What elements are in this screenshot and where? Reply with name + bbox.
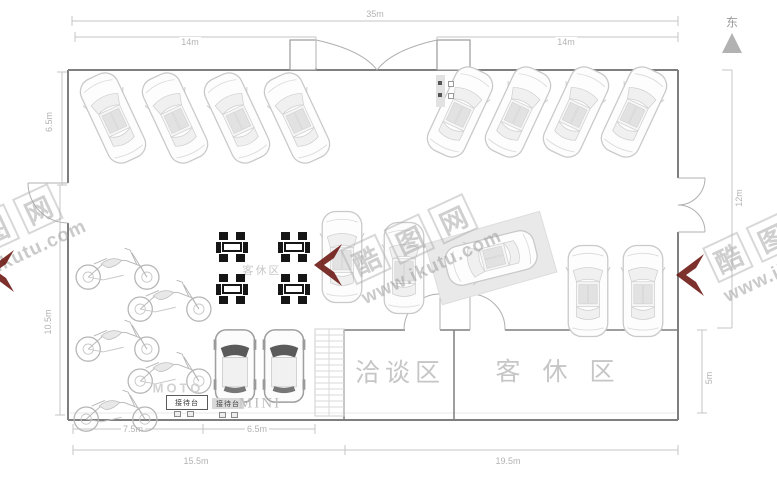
mini-area-label: MINI — [239, 396, 281, 413]
compass-east-label: 东 — [726, 14, 738, 31]
panel-switch-icon — [438, 93, 442, 97]
dim-top-left: 14m — [179, 37, 201, 47]
lounge-room-label: 客休区 — [495, 352, 636, 388]
panel-switch-icon — [448, 93, 454, 99]
table-icon — [278, 232, 310, 262]
lounge-seating-label: 客休区 — [243, 262, 282, 278]
entrance-panel — [436, 75, 445, 107]
reception-desk-label: 接待台 — [216, 399, 240, 409]
floorplan-canvas: 35m 14m 14m 6.5m 10.5m 12m 5m 7.5m 6.5m … — [0, 0, 777, 483]
dim-bottom-mini: 6.5m — [245, 424, 269, 434]
reception-desk: 接待台 — [166, 395, 208, 410]
dim-top-right: 14m — [555, 37, 577, 47]
stool-icon — [174, 411, 181, 417]
stool-icon — [187, 411, 194, 417]
moto-area-label: MOTO — [153, 381, 204, 396]
dim-top-total: 35m — [364, 9, 386, 19]
stool-icon — [219, 412, 226, 418]
car-icon — [381, 218, 427, 318]
kutu-logo-icon — [676, 252, 706, 298]
kutu-logo-icon — [0, 248, 16, 294]
panel-switch-icon — [438, 81, 442, 85]
motorcycle-icon — [70, 380, 162, 434]
dim-left-lower: 10.5m — [43, 307, 53, 336]
dim-left-upper: 6.5m — [44, 110, 54, 134]
mini-car-icon — [213, 328, 257, 404]
stool-icon — [231, 412, 238, 418]
kutu-logo-icon — [314, 242, 344, 288]
compass-arrow-icon — [722, 33, 742, 53]
table-icon — [278, 274, 310, 304]
car-icon — [620, 241, 666, 341]
reception-desk-label: 接待台 — [175, 398, 199, 408]
dim-bottom-left: 15.5m — [181, 456, 210, 466]
table-icon — [216, 274, 248, 304]
car-icon — [565, 241, 611, 341]
dim-right-lower: 5m — [704, 370, 714, 387]
mini-car-icon — [262, 328, 306, 404]
table-icon — [216, 232, 248, 262]
dim-bottom-right: 19.5m — [493, 456, 522, 466]
panel-switch-icon — [448, 81, 454, 87]
negotiation-room-label: 洽谈区 — [355, 353, 445, 389]
dim-right-upper: 12m — [734, 187, 744, 209]
